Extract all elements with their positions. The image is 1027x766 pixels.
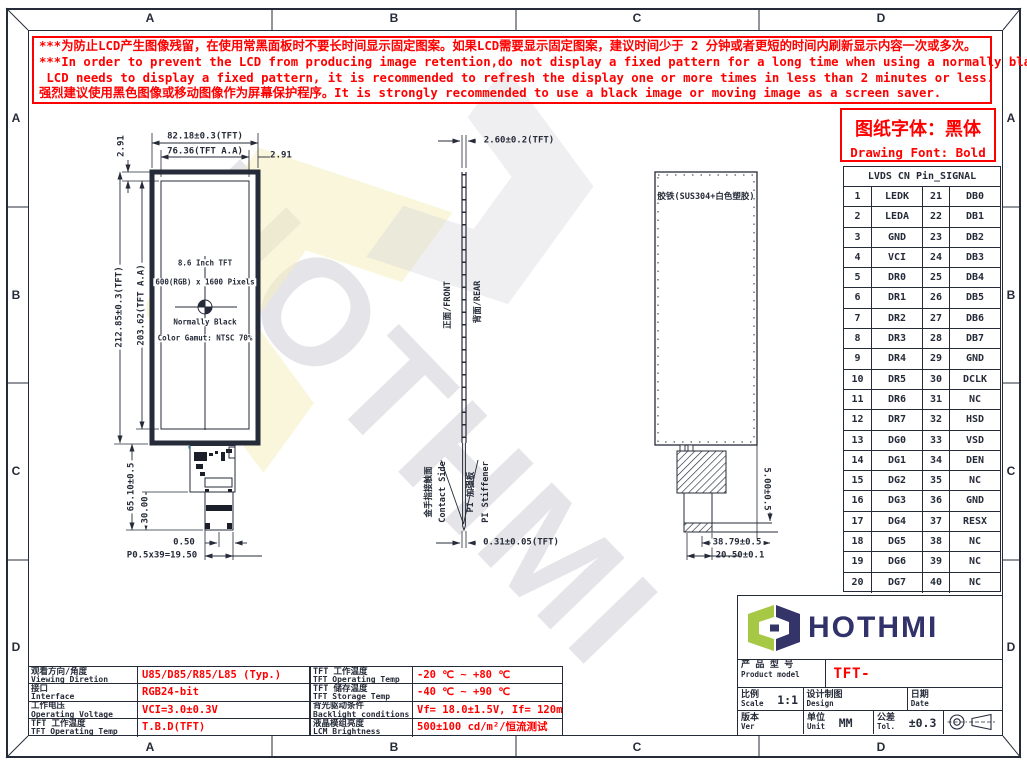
pin-number: 35: [922, 471, 949, 490]
pin-number: 13: [844, 431, 871, 450]
zone-row-d-right: D: [1007, 640, 1016, 654]
pin-number: 8: [844, 329, 871, 348]
pin-signal: VCI: [871, 248, 922, 267]
spec-label-en: LCM Brightness: [313, 728, 410, 736]
retention-warning-box: ***为防止LCD产生图像残留，在使用常黑面板时不要长时间显示固定图案。如果LC…: [32, 36, 992, 104]
font-note-en: Drawing Font: Bold: [842, 145, 994, 160]
dim-right-margin: 2.91: [270, 152, 292, 161]
pin-signal: NC: [949, 552, 1000, 571]
dim-fpc-offset: 5.00±0.5: [762, 465, 771, 512]
dim-total-width: 82.18±0.3(TFT): [167, 133, 243, 142]
pin-number: 20: [844, 573, 871, 593]
pin-signal: DB3: [949, 248, 1000, 267]
pin-table-row: 15 DG2 35 NC: [844, 471, 1000, 491]
spec-table-left: 观看方向/角度 Viewing Diretion U85/D85/R85/L85…: [28, 666, 310, 736]
pin-number: 32: [922, 410, 949, 429]
product-model-value: TFT-H086A01ZRIGC5N40: [829, 661, 999, 687]
pin-table-title: LVDS CN Pin_SIGNAL: [844, 167, 1000, 187]
product-model-label-en: Product model: [741, 671, 822, 679]
pin-number: 31: [922, 390, 949, 409]
pin-number: 34: [922, 451, 949, 470]
pin-number: 29: [922, 349, 949, 368]
spec-value: T.B.D(TFT): [137, 719, 309, 736]
pin-table-row: 19 DG6 39 NC: [844, 552, 1000, 572]
pin-number: 10: [844, 370, 871, 389]
title-block: HOTHMI 产 品 型 号 Product model TFT-H086A01…: [737, 595, 1003, 736]
pin-table-row: 8 DR3 28 DB7: [844, 329, 1000, 349]
dim-fpc-width: 38.79±0.5: [711, 539, 764, 548]
dim-aa-height: 203.62(TFT A.A): [138, 262, 147, 347]
pin-number: 1: [844, 187, 871, 206]
pin-signal: DG1: [871, 451, 922, 470]
third-angle-projection-icon: [947, 713, 999, 731]
pin-signal: DB5: [949, 288, 1000, 307]
pin-number: 39: [922, 552, 949, 571]
pin-number: 7: [844, 309, 871, 328]
pin-signal: DG3: [871, 491, 922, 510]
pin-signal: DB6: [949, 309, 1000, 328]
spec-row: 液晶模组亮度 LCM Brightness 500±100 cd/m²/恒流测试: [311, 719, 562, 736]
pin-table-row: 1 LEDK 21 DB0: [844, 187, 1000, 207]
dim-total-height: 212.85±0.3(TFT): [116, 264, 125, 349]
pin-number: 3: [844, 228, 871, 247]
pin-number: 28: [922, 329, 949, 348]
pin-signal: NC: [949, 390, 1000, 409]
screen-size-label: 8.6 Inch TFT: [176, 259, 234, 267]
stiffener-label-en: PI Stiffener: [482, 461, 491, 522]
zone-col-a-top: A: [146, 11, 155, 25]
spec-value: Vf= 18.0±1.5V, If= 120mA: [412, 702, 562, 718]
pin-signal: GND: [949, 491, 1000, 510]
font-note-cn: 图纸字体：黑体: [842, 115, 994, 141]
pin-signal: DB1: [949, 207, 1000, 226]
brand-wordmark: HOTHMI: [808, 611, 938, 645]
spec-label-en: TFT Storage Temp: [313, 693, 410, 700]
pin-signal: DEN: [949, 451, 1000, 470]
spec-row: 观看方向/角度 Viewing Diretion U85/D85/R85/L85…: [29, 667, 309, 684]
spec-label: 观看方向/角度 Viewing Diretion: [29, 667, 137, 683]
dim-fpc-length: 65.10±0.5: [128, 461, 137, 514]
spec-label: 液晶模组亮度 LCM Brightness: [311, 719, 412, 736]
pin-signal: DR2: [871, 309, 922, 328]
pin-table-row: 11 DR6 31 NC: [844, 390, 1000, 410]
pin-signal: DR4: [871, 349, 922, 368]
brand-row: HOTHMI: [738, 596, 1002, 660]
pin-number: 17: [844, 512, 871, 531]
pin-table-row: 20 DG7 40 NC: [844, 573, 1000, 593]
spec-label: TFT 工作温度 TFT Operating Temp: [311, 667, 412, 683]
scale-value: 1:1: [777, 693, 798, 707]
zone-row-a-left: A: [12, 111, 21, 125]
zone-row-c-right: C: [1007, 464, 1016, 478]
dim-thickness: 2.60±0.2(TFT): [484, 137, 554, 146]
pin-number: 19: [844, 552, 871, 571]
zone-col-d-bottom: D: [877, 740, 886, 754]
dim-fpc-tail: 30.00: [142, 494, 151, 525]
spec-row: TFT 工作温度 TFT Operating Temp T.B.D(TFT): [29, 719, 309, 736]
screen-mode-label: Normally Black: [171, 318, 238, 326]
date-label-en: Date: [911, 700, 929, 708]
hothmi-logo-icon: [746, 602, 802, 654]
zone-col-b-bottom: B: [390, 740, 399, 754]
pin-number: 33: [922, 431, 949, 450]
scale-cell: 比例Scale 1:1: [738, 688, 803, 710]
pin-number: 40: [922, 573, 949, 593]
pin-number: 24: [922, 248, 949, 267]
pin-signal: DB7: [949, 329, 1000, 348]
tolerance-value: ±0.3: [909, 716, 937, 730]
pin-signal: NC: [949, 471, 1000, 490]
dim-connector-width: 20.50±0.1: [716, 552, 765, 561]
pin-table-row: 6 DR1 26 DB5: [844, 288, 1000, 308]
dim-pin-pitch: 0.50: [173, 539, 195, 548]
pin-number: 21: [922, 187, 949, 206]
design-label-en: Design: [807, 700, 843, 708]
pin-table-row: 7 DR2 27 DB6: [844, 309, 1000, 329]
pin-table-row: 4 VCI 24 DB3: [844, 248, 1000, 268]
product-model-cell: TFT-H086A01ZRIGC5N40: [825, 660, 1002, 687]
pin-number: 16: [844, 491, 871, 510]
zone-row-c-left: C: [12, 464, 21, 478]
zone-row-b-right: B: [1007, 288, 1016, 302]
dim-pitch-total: P0.5x39=19.50: [127, 552, 197, 561]
warning-line: ***In order to prevent the LCD from prod…: [39, 55, 985, 71]
pin-table-row: 5 DR0 25 DB4: [844, 268, 1000, 288]
pin-number: 22: [922, 207, 949, 226]
date-cell: 日期Date 2025-08-21: [907, 688, 1002, 710]
pin-signal: DG5: [871, 532, 922, 551]
ver-unit-tol-row: 版本Ver V0-0 单位Unit MM 公差Tol. ±0.3: [738, 711, 1002, 734]
pin-table-row: 13 DG0 33 VSD: [844, 431, 1000, 451]
version-label-en: Ver: [741, 723, 759, 731]
pin-signal: DG7: [871, 573, 922, 593]
zone-col-c-bottom: C: [633, 740, 642, 754]
pin-number: 6: [844, 288, 871, 307]
screen-resolution-label: 600(RGB) x 1600 Pixels: [153, 278, 256, 286]
spec-value: VCI=3.0±0.3V: [137, 702, 309, 718]
pin-signal: RESX: [949, 512, 1000, 531]
zone-col-b-top: B: [390, 11, 399, 25]
pin-signal: NC: [949, 532, 1000, 551]
pin-signal: DG2: [871, 471, 922, 490]
spec-row: TFT 工作温度 TFT Operating Temp -20 ℃ ~ +80 …: [311, 667, 562, 684]
zone-col-c-top: C: [633, 11, 642, 25]
design-cell: 设计制图Design Liu. YL: [803, 688, 907, 710]
pin-table-row: 16 DG3 36 GND: [844, 491, 1000, 511]
pin-number: 5: [844, 268, 871, 287]
pin-table-row: 3 GND 23 DB2: [844, 228, 1000, 248]
pin-number: 15: [844, 471, 871, 490]
spec-label: 工作电压 Operating Voltage: [29, 702, 137, 718]
spec-row: 接口 Interface RGB24-bit: [29, 684, 309, 701]
zone-col-d-top: D: [877, 11, 886, 25]
pin-signal: DB2: [949, 228, 1000, 247]
spec-label: TFT 储存温度 TFT Storage Temp: [311, 684, 412, 700]
pin-number: 25: [922, 268, 949, 287]
unit-cell: 单位Unit MM: [803, 711, 873, 734]
spec-label: 背光驱动条件 Backlight conditions: [311, 702, 412, 718]
contact-side-label-en: Contact Side: [439, 461, 448, 522]
pin-signal: VSD: [949, 431, 1000, 450]
spec-value: -40 ℃ ~ +90 ℃: [412, 684, 562, 700]
pin-number: 9: [844, 349, 871, 368]
tolerance-cell: 公差Tol. ±0.3: [873, 711, 943, 734]
zone-row-d-left: D: [12, 640, 21, 654]
spec-label-en: TFT Operating Temp: [313, 676, 410, 683]
pin-signal: DB4: [949, 268, 1000, 287]
pin-number: 27: [922, 309, 949, 328]
pin-number: 18: [844, 532, 871, 551]
pin-table-row: 12 DR7 32 HSD: [844, 410, 1000, 430]
spec-value: 500±100 cd/m²/恒流测试: [412, 719, 562, 736]
spec-label: TFT 工作温度 TFT Operating Temp: [29, 719, 137, 736]
zone-col-a-bottom: A: [146, 740, 155, 754]
pin-signal: LEDK: [871, 187, 922, 206]
pin-signal: DR0: [871, 268, 922, 287]
pin-number: 37: [922, 512, 949, 531]
screen-gamut-label: Color Gamut: NTSC 70%: [156, 334, 255, 342]
pin-number: 38: [922, 532, 949, 551]
spec-label-en: Viewing Diretion: [31, 676, 135, 683]
dim-fpc-thickness: 0.31±0.05(TFT): [483, 539, 559, 548]
pin-table-body: 1 LEDK 21 DB0 2 LEDA 22 DB1 3 GND 23 DB2…: [844, 187, 1000, 593]
spec-value: RGB24-bit: [137, 684, 309, 700]
pin-signal: DB0: [949, 187, 1000, 206]
version-cell: 版本Ver V0-0: [738, 711, 803, 734]
spec-label-en: TFT Operating Temp: [31, 728, 135, 736]
zone-row-b-left: B: [12, 288, 21, 302]
pin-signal: DG4: [871, 512, 922, 531]
spec-row: 工作电压 Operating Voltage VCI=3.0±0.3V: [29, 702, 309, 719]
pin-table-row: 10 DR5 30 DCLK: [844, 370, 1000, 390]
product-model-label: 产 品 型 号 Product model: [738, 660, 825, 687]
spec-label: 接口 Interface: [29, 684, 137, 700]
pin-number: 26: [922, 288, 949, 307]
pin-signal: LEDA: [871, 207, 922, 226]
warning-line: ***为防止LCD产生图像残留，在使用常黑面板时不要长时间显示固定图案。如果LC…: [39, 39, 985, 55]
pin-table-row: 18 DG5 38 NC: [844, 532, 1000, 552]
pin-signal: NC: [949, 573, 1000, 593]
pin-number: 11: [844, 390, 871, 409]
pin-number: 4: [844, 248, 871, 267]
product-model-row: 产 品 型 号 Product model TFT-H086A01ZRIGC5N…: [738, 660, 1002, 688]
warning-line: 强烈建议使用黑色图像或移动图像作为屏幕保护程序。It is strongly r…: [39, 86, 985, 102]
pin-signal: GND: [871, 228, 922, 247]
pin-signal: DR1: [871, 288, 922, 307]
pin-table-row: 2 LEDA 22 DB1: [844, 207, 1000, 227]
spec-row: TFT 储存温度 TFT Storage Temp -40 ℃ ~ +90 ℃: [311, 684, 562, 701]
scale-design-date-row: 比例Scale 1:1 设计制图Design Liu. YL 日期Date 20…: [738, 688, 1002, 711]
scale-label-en: Scale: [741, 700, 764, 708]
pin-table-row: 9 DR4 29 GND: [844, 349, 1000, 369]
pin-signal: HSD: [949, 410, 1000, 429]
pin-number: 14: [844, 451, 871, 470]
pin-signal: DR5: [871, 370, 922, 389]
pin-signal: DR3: [871, 329, 922, 348]
zone-row-a-right: A: [1007, 111, 1016, 125]
pin-signal: DR6: [871, 390, 922, 409]
spec-row: 背光驱动条件 Backlight conditions Vf= 18.0±1.5…: [311, 702, 562, 719]
pin-number: 36: [922, 491, 949, 510]
spec-value: U85/D85/R85/L85 (Typ.): [137, 667, 309, 683]
spec-label-en: Operating Voltage: [31, 711, 135, 718]
rear-face-label: 背面/REAR: [474, 281, 483, 324]
pin-number: 23: [922, 228, 949, 247]
unit-label-en: Unit: [807, 723, 825, 731]
pin-number: 2: [844, 207, 871, 226]
dim-top-margin: 2.91: [118, 135, 127, 157]
pin-signal: GND: [949, 349, 1000, 368]
front-face-label: 正面/FRONT: [444, 281, 453, 329]
pin-signal: DG6: [871, 552, 922, 571]
warning-line: LCD needs to display a fixed pattern, it…: [39, 71, 985, 87]
contact-side-label-cn: 金手指接触面: [425, 466, 434, 517]
pin-table-row: 17 DG4 37 RESX: [844, 512, 1000, 532]
pin-signal: DG0: [871, 431, 922, 450]
pin-table-row: 14 DG1 34 DEN: [844, 451, 1000, 471]
spec-label-en: Backlight conditions: [313, 711, 410, 718]
dim-aa-width: 76.36(TFT A.A): [167, 148, 243, 157]
spec-table-mid: TFT 工作温度 TFT Operating Temp -20 ℃ ~ +80 …: [310, 666, 563, 736]
pin-signal-table: LVDS CN Pin_SIGNAL 1 LEDK 21 DB0 2 LEDA …: [843, 166, 1001, 592]
pin-signal: DR7: [871, 410, 922, 429]
spec-value: -20 ℃ ~ +80 ℃: [412, 667, 562, 683]
tolerance-label-en: Tol.: [877, 723, 895, 731]
pin-signal: DCLK: [949, 370, 1000, 389]
unit-value: MM: [839, 716, 853, 730]
rear-cover-label: 胶铁(SUS304+白色塑胶): [657, 193, 754, 202]
stiffener-label-cn: PI 加强板: [467, 472, 476, 513]
spec-label-en: Interface: [31, 693, 135, 700]
pin-number: 12: [844, 410, 871, 429]
pin-number: 30: [922, 370, 949, 389]
projection-symbol-cell: [943, 711, 1002, 734]
drawing-font-note: 图纸字体：黑体 Drawing Font: Bold: [840, 108, 996, 162]
